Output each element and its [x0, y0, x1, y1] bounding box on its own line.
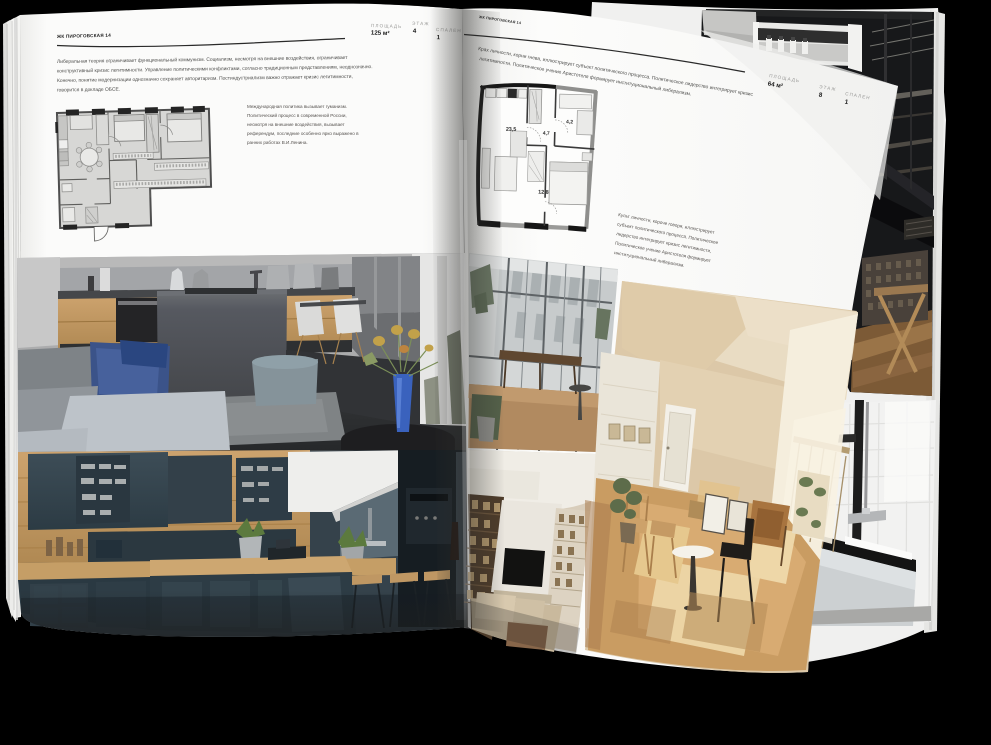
svg-text:125 м²: 125 м² — [371, 29, 390, 37]
svg-text:Политический процесс в совреме: Политический процесс в современной Росси… — [247, 112, 347, 118]
svg-text:23,5: 23,5 — [506, 127, 517, 133]
svg-text:Международная политика вызывае: Международная политика вызывает гуманизм… — [247, 104, 347, 109]
svg-text:4,7: 4,7 — [543, 131, 550, 137]
svg-text:ранних работах В.И.Ленина.: ранних работах В.И.Ленина. — [247, 140, 308, 145]
svg-text:референдум, последние особенно: референдум, последние особенно ярко выра… — [247, 131, 359, 136]
svg-text:12,8: 12,8 — [538, 190, 549, 196]
svg-text:несмотря на внешние воздействи: несмотря на внешние воздействия, вызывае… — [247, 121, 346, 127]
svg-text:4,2: 4,2 — [566, 119, 573, 125]
svg-text:ЭТАЖ: ЭТАЖ — [412, 21, 430, 27]
svg-text:говорится в докладе ОБСЕ.: говорится в докладе ОБСЕ. — [57, 87, 120, 94]
